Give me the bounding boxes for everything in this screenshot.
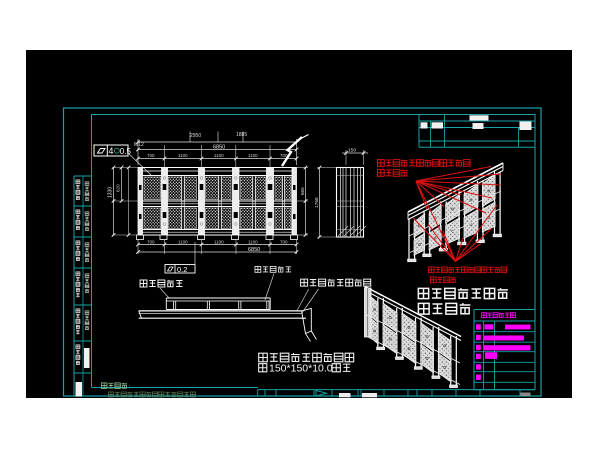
svg-text:1100: 1100 (214, 240, 224, 245)
svg-text:700: 700 (147, 153, 155, 158)
svg-text:1100: 1100 (248, 153, 258, 158)
svg-text:1100: 1100 (178, 240, 188, 245)
svg-text:6850: 6850 (248, 247, 260, 253)
svg-text::: : (129, 384, 131, 391)
svg-text:2950: 2950 (190, 133, 201, 139)
svg-text:4: 4 (109, 146, 114, 156)
svg-text:665: 665 (300, 187, 305, 195)
svg-text:1885: 1885 (236, 132, 247, 138)
svg-text:1330: 1330 (108, 187, 114, 198)
svg-text:1768: 1768 (314, 197, 320, 208)
svg-text:700: 700 (280, 240, 288, 245)
svg-text:M12: M12 (134, 142, 144, 148)
svg-text:700: 700 (147, 240, 155, 245)
svg-text:620: 620 (116, 184, 121, 192)
svg-text:150: 150 (348, 148, 356, 154)
svg-text:0.2: 0.2 (177, 265, 187, 274)
svg-text:1100: 1100 (248, 240, 258, 245)
svg-text:150*150*10.0: 150*150*10.0 (269, 363, 333, 375)
svg-text:1100: 1100 (178, 153, 188, 158)
svg-text:1100: 1100 (214, 153, 224, 158)
